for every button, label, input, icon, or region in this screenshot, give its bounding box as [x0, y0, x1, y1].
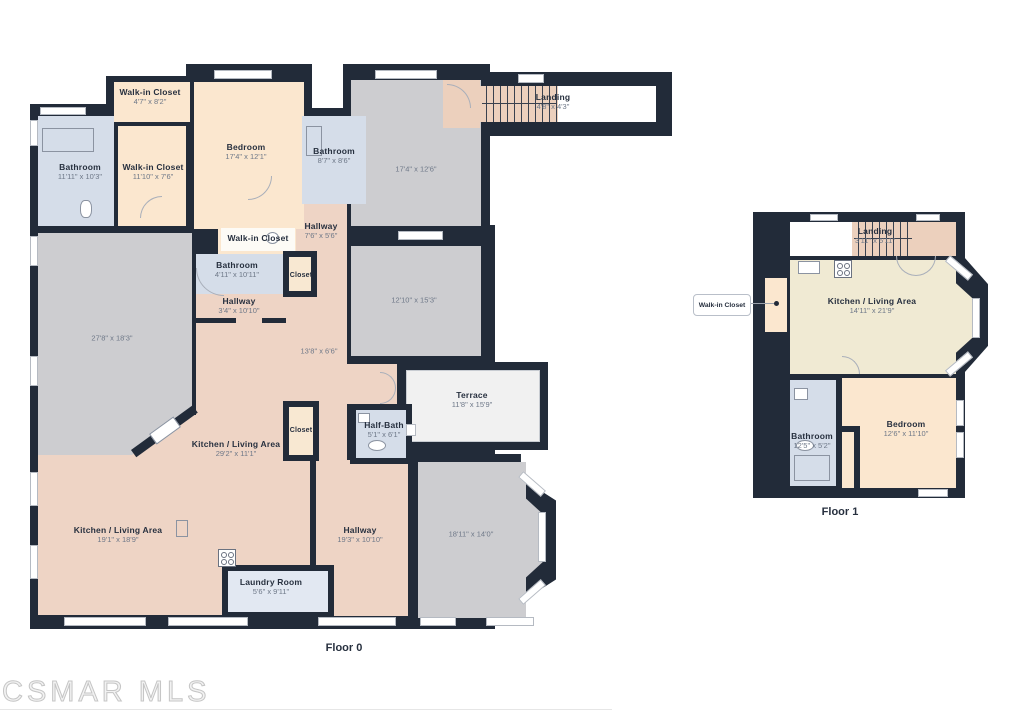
room-label-closet-mid: Closet	[290, 272, 313, 280]
floor-plan-canvas: Bathroom11'11" x 10'3" Walk-in Closet4'7…	[0, 0, 1024, 724]
wall-stub	[262, 318, 286, 323]
window	[30, 356, 38, 386]
room-label-bedroom1: Bedroom12'6" x 11'10"	[884, 420, 929, 438]
room-landing1	[790, 222, 852, 256]
sink-icon	[798, 261, 820, 274]
room-label-hallway-mid: Hallway3'4" x 10'10"	[218, 297, 259, 315]
window	[64, 617, 146, 626]
room-label-hallway-low: Hallway19'3" x 10'10"	[337, 526, 382, 544]
window	[214, 70, 272, 79]
floor0-title: Floor 0	[326, 642, 363, 654]
room-label-bathroom-top: Bathroom8'7" x 8'6"	[313, 147, 355, 165]
window	[30, 120, 38, 146]
room-18x14	[418, 462, 526, 618]
watermark-underline	[0, 709, 612, 710]
room-label-landing: Landing4'8" x 4'3"	[536, 93, 570, 111]
room-label-terrace: Terrace11'8" x 15'9"	[452, 391, 493, 409]
window	[30, 545, 38, 579]
landing-entry	[914, 222, 956, 256]
room-label-17x12: 17'4" x 12'6"	[395, 166, 436, 175]
room-label-12x15: 12'10" x 15'3"	[391, 297, 436, 306]
room-label-wic-top: Walk-in Closet4'7" x 8'2"	[119, 88, 180, 106]
interior-window	[398, 231, 443, 240]
halfbath-door-gap	[406, 424, 416, 436]
bay-window	[538, 512, 546, 562]
window	[810, 214, 838, 221]
toilet-icon	[80, 200, 92, 218]
room-label-bedroom: Bedroom17'4" x 12'1"	[225, 143, 266, 161]
callout-connector-line	[749, 303, 775, 304]
room-label-wic-mid: Walk-in Closet	[227, 234, 288, 244]
callout-connector-dot	[774, 301, 779, 306]
room-label-18x14: 18'11" x 14'0"	[449, 531, 494, 540]
window	[956, 400, 964, 426]
room-label-bathroom-tl: Bathroom11'11" x 10'3"	[58, 163, 102, 181]
bay-window	[972, 298, 980, 338]
room-label-bathroom1: Bathroom12'5" x 5'2"	[791, 432, 833, 450]
stove-icon	[834, 260, 852, 278]
window	[486, 617, 534, 626]
window	[168, 617, 248, 626]
interior-wall	[836, 378, 842, 488]
room-label-kitchen-main: Kitchen / Living Area19'1" x 18'9"	[74, 526, 162, 544]
window	[518, 74, 544, 83]
shower-icon	[794, 455, 830, 481]
room-label-half-bath: Half-Bath5'1" x 6'1"	[364, 421, 404, 439]
window	[30, 236, 38, 266]
window	[30, 472, 38, 506]
room-label-corridor: 13'8" x 6'6"	[301, 348, 338, 357]
toilet-icon	[368, 440, 386, 451]
window	[918, 489, 948, 497]
floor1-title: Floor 1	[822, 506, 859, 518]
watermark-text: CSMAR MLS	[2, 676, 210, 709]
window	[40, 107, 86, 115]
room-label-27x18: 27'8" x 18'3"	[91, 335, 132, 344]
window	[916, 214, 940, 221]
stove-icon	[218, 549, 236, 567]
wall-stub	[854, 426, 860, 488]
cabinet-icon	[176, 520, 188, 537]
room-landing	[558, 86, 656, 122]
room-label-bathroom-mid: Bathroom4'11" x 10'11"	[215, 261, 259, 279]
room-kitchen-living-1	[790, 260, 956, 374]
room-label-laundry: Laundry Room5'6" x 9'11"	[240, 578, 302, 596]
sink-icon	[794, 388, 808, 400]
room-label-hallway-top: Hallway7'6" x 5'6"	[304, 222, 337, 240]
window	[420, 617, 456, 626]
room-label-closet-low: Closet	[290, 427, 313, 435]
room-label-wic-left: Walk-in Closet11'10" x 7'6"	[122, 163, 183, 181]
window	[375, 70, 437, 79]
room-label-kitchen-band: Kitchen / Living Area29'2" x 11'1"	[192, 440, 280, 458]
room-label-landing1: Landing3'11" x 5'11"	[855, 227, 895, 245]
shower-icon	[42, 128, 94, 152]
window	[318, 617, 396, 626]
wic-callout-box: Walk-in Closet	[693, 294, 751, 316]
window	[956, 432, 964, 458]
wall-stub	[196, 318, 236, 323]
room-label-kitchen1: Kitchen / Living Area14'11" x 21'9"	[828, 297, 916, 315]
